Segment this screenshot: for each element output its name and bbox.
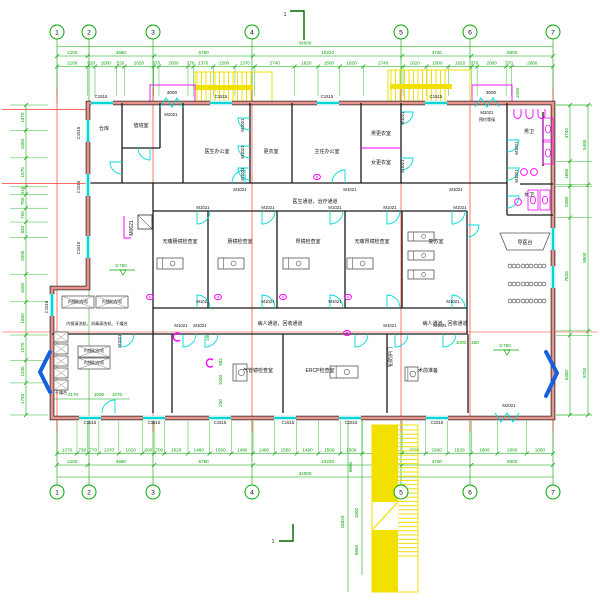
dim-label: 9900 xyxy=(582,252,587,263)
toilet xyxy=(542,196,547,204)
room-label: 无痛肠镜检查室 xyxy=(162,238,197,245)
door-label: M1021 xyxy=(449,187,463,192)
room-label: 肠镜检查室 xyxy=(227,238,252,245)
dim-total: 34000 xyxy=(299,41,312,46)
dim-label: 1000 xyxy=(94,392,105,397)
exam-bed xyxy=(405,367,418,381)
storage-label: 干燥台 xyxy=(55,389,67,395)
window-label: C1515 xyxy=(345,420,358,425)
waiting-chair xyxy=(534,264,538,268)
dim-label: 2000 xyxy=(168,61,179,66)
dim-label: 370 xyxy=(471,61,479,66)
dim-label: 1370 xyxy=(20,112,25,123)
dim-label: 2860 xyxy=(527,61,538,66)
waiting-chair xyxy=(529,299,533,303)
waiting-chair xyxy=(542,299,546,303)
floor-plan-canvas: 3400021004560678010220474056002100520150… xyxy=(0,0,600,600)
window-label: C1515 xyxy=(44,300,49,313)
dim-label: 6780 xyxy=(198,50,209,55)
dim-label: 2740 xyxy=(270,61,281,66)
dim-label: 2000 xyxy=(507,448,518,453)
axis-number: 2 xyxy=(87,29,91,36)
line xyxy=(372,502,398,530)
dim-label: 1620 xyxy=(454,448,465,453)
waiting-chair xyxy=(534,282,538,286)
stair-landing xyxy=(390,84,452,89)
room-label: ERCP检查室 xyxy=(306,367,335,374)
room-label: 导医台 xyxy=(517,239,532,246)
door-label: M1021 xyxy=(433,323,447,328)
cad-drawing: 3400021004560678010220474056002100520150… xyxy=(0,0,600,600)
toilet xyxy=(545,149,550,157)
axis-number: 3 xyxy=(151,489,155,496)
window-label: C1515 xyxy=(430,94,443,99)
dim-label: 1620 xyxy=(171,448,182,453)
door-label: M1021 xyxy=(400,111,405,125)
door-swing xyxy=(443,334,456,347)
dim-label: 10220 xyxy=(321,50,334,55)
dim-label: 10220 xyxy=(321,459,334,464)
door-label: M1021 xyxy=(196,205,210,210)
dim-label: 700 xyxy=(155,448,163,453)
door-swing xyxy=(395,334,408,347)
dim-label: 1370 xyxy=(198,61,209,66)
door-label: M2021 xyxy=(502,403,516,408)
door-label: M1021 xyxy=(261,299,275,304)
dim-label: 1000 xyxy=(456,340,467,345)
dim-label: 1570 xyxy=(20,167,25,178)
door-swing xyxy=(452,211,465,224)
exam-bed xyxy=(408,251,434,260)
exam-bed xyxy=(408,270,434,279)
axis-number: 5 xyxy=(399,489,403,496)
section-marks xyxy=(279,11,304,541)
dim-label: 410 xyxy=(20,186,25,194)
dimension-layer: 3400021004560678010220474056002100520150… xyxy=(10,39,592,592)
dim-label: 770 xyxy=(89,448,97,453)
dim-label: 1500 xyxy=(219,61,230,66)
storage-label: 内镜贮存柜 xyxy=(68,298,88,304)
door-label: M1021 xyxy=(514,141,519,155)
elevation-marker xyxy=(504,350,510,355)
dim-label: 1500 xyxy=(432,448,443,453)
dim-label: 1800 xyxy=(479,448,490,453)
entry-arrow-west xyxy=(40,352,50,392)
waiting-chair xyxy=(508,299,512,303)
door-label: M2021 xyxy=(480,110,494,115)
dim-label: 5600 xyxy=(507,50,518,55)
stair-ramp xyxy=(372,530,398,592)
waiting-chair xyxy=(538,282,542,286)
axis-number: 2 xyxy=(87,489,91,496)
storage-label: 内镜贮存柜 xyxy=(102,298,122,304)
door-label: M1021 xyxy=(196,299,210,304)
dim-label: 1230 xyxy=(20,366,25,377)
dim-label: 1500 xyxy=(101,61,112,66)
room-label: 男卫 xyxy=(524,129,534,135)
storage-label: 内镜贮存柜 xyxy=(84,359,104,365)
waiting-chair xyxy=(508,264,512,268)
dim-label: 3.750 xyxy=(115,263,127,268)
dim-label: 230 xyxy=(218,399,223,407)
dim-label: 1370 xyxy=(20,342,25,353)
window-label: C1515 xyxy=(431,420,444,425)
door-swing xyxy=(507,196,519,208)
door-label: 预约等候 xyxy=(479,116,495,122)
dim-label: 1620 xyxy=(455,61,466,66)
toilet xyxy=(545,125,550,133)
door-label: M1021 xyxy=(117,334,122,348)
waiting-chair xyxy=(508,282,512,286)
vent-dot xyxy=(316,176,318,178)
dim-label: 750 xyxy=(20,197,25,205)
waiting-chair xyxy=(525,299,529,303)
dim-label: 370 xyxy=(505,61,513,66)
door-swing xyxy=(332,170,345,183)
door-label: M1021 xyxy=(240,167,245,181)
window-label: C1515 xyxy=(282,420,295,425)
storage-label: 内镜清洗机、消毒清洗机、干燥台 xyxy=(66,320,127,326)
dim-label: 2000 xyxy=(20,250,25,261)
urinal xyxy=(514,109,521,119)
waiting-chair xyxy=(538,264,542,268)
door-label: M1021 xyxy=(328,299,342,304)
waiting-chair xyxy=(538,299,542,303)
axis-number: 4 xyxy=(250,489,254,496)
door-label: M1021 xyxy=(240,118,245,132)
dim-label: 2170 xyxy=(68,392,79,397)
waiting-chair xyxy=(521,299,525,303)
dim-label: 4560 xyxy=(116,50,127,55)
dim-label: 4740 xyxy=(432,459,443,464)
dim-label: 2080 xyxy=(564,196,569,207)
waiting-chair xyxy=(516,299,520,303)
room-label: 仓库 xyxy=(99,125,109,132)
dim-label: 830 xyxy=(20,225,25,233)
room-label: 无痛胃镜检查室 xyxy=(354,238,389,245)
dim-label: 2000 xyxy=(487,61,498,66)
door-swing xyxy=(355,334,368,347)
door-label: M1021 xyxy=(261,205,275,210)
dim-label: 5400 xyxy=(582,139,587,150)
dim-label: 3740 xyxy=(564,128,569,139)
door-swing xyxy=(110,162,122,174)
door-label: M1021 xyxy=(328,205,342,210)
dim-label: 1620 xyxy=(126,448,137,453)
axis-number: 1 xyxy=(55,489,59,496)
waiting-chair xyxy=(512,264,516,268)
door-label: M1021 xyxy=(193,323,207,328)
waiting-chair xyxy=(516,282,520,286)
sink xyxy=(521,169,528,176)
dim-label: 5300 xyxy=(564,370,569,381)
window-label: C1515 xyxy=(214,420,227,425)
door-label: M2021 xyxy=(164,112,178,117)
urinal xyxy=(538,109,545,119)
dim-label: 370 xyxy=(152,61,160,66)
waiting-chair xyxy=(525,264,529,268)
waiting-chair xyxy=(512,299,516,303)
door-label: M1021 xyxy=(453,205,467,210)
dim-label: 1660 xyxy=(564,168,569,179)
window-label: C1515 xyxy=(95,94,108,99)
window-label: C1515 xyxy=(76,241,81,254)
dim-label: 3000 xyxy=(486,90,497,95)
door-swing xyxy=(102,400,115,413)
section-mark-bottom xyxy=(279,524,293,541)
storage-label: 内镜贮存柜 xyxy=(84,347,104,353)
dim-total: 34000 xyxy=(299,471,312,476)
dim-label: 1500 xyxy=(324,61,335,66)
dim-label: 1500 xyxy=(432,61,443,66)
door-label: M1021 xyxy=(383,323,397,328)
door-label: M1021 xyxy=(383,205,397,210)
axis-number: 7 xyxy=(551,29,555,36)
dim-label: 1370 xyxy=(62,448,73,453)
dim-label: 1620 xyxy=(410,61,421,66)
annotation: 铅防护门 xyxy=(387,347,394,367)
waiting-chair xyxy=(534,299,538,303)
toilet-stall xyxy=(540,190,550,210)
annotation: 1 xyxy=(272,539,275,545)
waiting-chair xyxy=(529,282,533,286)
dim-label: 750 xyxy=(20,211,25,219)
vent-dot xyxy=(347,296,349,298)
room-label: 术前准备 xyxy=(418,367,438,374)
corridor-label: 病人通道，回收通道 xyxy=(257,320,302,327)
waiting-chair xyxy=(542,264,546,268)
dim-label: 730 xyxy=(78,448,86,453)
section-mark-top xyxy=(290,11,304,40)
dim-label: 2100 xyxy=(67,61,78,66)
door-label: M1021 xyxy=(400,159,405,173)
annotation: 1 xyxy=(284,12,287,18)
window-label: C1515 xyxy=(321,94,334,99)
dim-label: 7820 xyxy=(564,271,569,282)
annotation: M0621 xyxy=(129,220,135,236)
waiting-chair xyxy=(542,282,546,286)
door-swing xyxy=(387,295,400,308)
room-label: 值班室 xyxy=(133,122,148,129)
window-label: C1515 xyxy=(84,420,97,425)
door-label: M1021 xyxy=(446,299,460,304)
door-swing xyxy=(138,148,150,160)
door-label: M1021 xyxy=(514,169,519,183)
window-label: C1515 xyxy=(215,94,228,99)
dim-label: 2020 xyxy=(134,61,145,66)
dim-label: 3.750 xyxy=(499,343,511,348)
line xyxy=(138,215,152,229)
dim-label: 1800 xyxy=(20,313,25,324)
vent-dot xyxy=(217,296,219,298)
dim-label: 1490 xyxy=(302,448,313,453)
axis-number: 6 xyxy=(468,489,472,496)
axis-number: 6 xyxy=(468,29,472,36)
gas-outlet xyxy=(206,359,213,367)
dim-label: 4740 xyxy=(432,50,443,55)
room-label: 主任办公室 xyxy=(314,148,339,155)
room-label: 医生办公室 xyxy=(204,148,229,155)
sink xyxy=(531,169,538,176)
dim-label: 1500 xyxy=(215,448,226,453)
window-label: C1515 xyxy=(76,126,81,139)
vent-dot xyxy=(149,296,151,298)
door-label: M1021 xyxy=(174,323,188,328)
dim-label: 1490 xyxy=(259,448,270,453)
dim-label: 6780 xyxy=(198,459,209,464)
axis-number: 1 xyxy=(55,29,59,36)
room-label: 女卫 xyxy=(524,191,534,198)
dim-label: 1480 xyxy=(194,448,205,453)
waiting-chair xyxy=(521,282,525,286)
vent-dot xyxy=(282,296,284,298)
dim-label: 1800 xyxy=(535,448,546,453)
door-swing xyxy=(183,334,196,347)
dim-label: 1370 xyxy=(240,61,251,66)
dim-label: 8660 xyxy=(354,544,359,555)
dim-label: 2740 xyxy=(378,61,389,66)
dim-label: 18820 xyxy=(340,515,345,528)
dim-label: 1740 xyxy=(20,393,25,404)
window-label: C1515 xyxy=(148,420,161,425)
door-swing xyxy=(467,225,479,237)
dim-label: 1500 xyxy=(281,448,292,453)
waiting-chair xyxy=(529,264,533,268)
door-swing xyxy=(121,334,134,347)
window-label: C1515 xyxy=(76,180,81,193)
dim-label: 5600 xyxy=(507,459,518,464)
room-label: 更衣室 xyxy=(263,148,278,155)
dim-label: 3000 xyxy=(167,90,178,95)
dim-label: 4560 xyxy=(116,459,127,464)
waiting-chair xyxy=(516,264,520,268)
dim-label: 1500 xyxy=(20,139,25,150)
corridor-label: 医生通道，治疗通道 xyxy=(292,198,337,205)
axis-number: 7 xyxy=(551,489,555,496)
dim-label: 5700 xyxy=(582,367,587,378)
room-label: 胃镜检查室 xyxy=(295,238,320,245)
dim-label: 1480 xyxy=(237,448,248,453)
axis-number: 5 xyxy=(399,29,403,36)
dim-label: 1620 xyxy=(301,61,312,66)
elevation-marker xyxy=(120,270,126,275)
sink xyxy=(515,199,522,206)
waiting-chair xyxy=(525,282,529,286)
urinal xyxy=(526,109,533,119)
door-label: M1021 xyxy=(233,187,247,192)
room-label: 复苏室 xyxy=(428,238,443,245)
stair-landing xyxy=(195,85,253,90)
door-swing xyxy=(330,211,343,224)
entry-arrows xyxy=(40,352,557,396)
dim-label: 150 xyxy=(471,340,479,345)
dim-label: 1620 xyxy=(346,61,357,66)
room-label: 气管镜检查室 xyxy=(243,367,273,374)
room-label: 男更衣室 xyxy=(371,130,391,137)
dim-label: 2100 xyxy=(67,50,78,55)
vent-dot xyxy=(346,332,348,334)
dim-label: 1500 xyxy=(515,87,520,98)
dim-label: 1070 xyxy=(112,392,123,397)
door-label: M1021 xyxy=(343,187,357,192)
dim-label: 462 xyxy=(218,358,223,366)
dim-label: 1500 xyxy=(324,448,335,453)
axis-number: 3 xyxy=(151,29,155,36)
dim-label: 370 xyxy=(187,61,195,66)
room-label: 女更衣室 xyxy=(371,159,391,166)
dim-label: 8660 xyxy=(348,461,353,472)
dim-label: 1500 xyxy=(20,282,25,293)
axis-number: 4 xyxy=(250,29,254,36)
dim-label: 1000 xyxy=(218,374,223,385)
dim-label: 2100 xyxy=(67,459,78,464)
door-swing xyxy=(387,211,400,224)
dim-label: 1500 xyxy=(354,507,359,518)
door-label: M1021 xyxy=(240,145,245,159)
waiting-chair xyxy=(521,264,525,268)
waiting-chair xyxy=(512,282,516,286)
door-swing xyxy=(262,211,275,224)
dim-label: 1370 xyxy=(104,448,115,453)
dim-label: 800 xyxy=(144,448,152,453)
